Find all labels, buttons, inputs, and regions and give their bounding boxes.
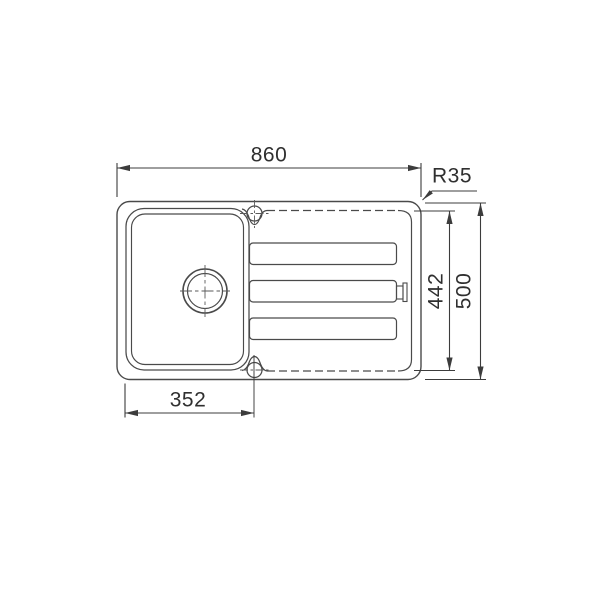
arrow-500-top	[477, 203, 483, 216]
groove-tab-cap	[403, 283, 407, 302]
drawing-canvas	[0, 0, 600, 600]
dim-label-overall-depth: 500	[454, 273, 475, 310]
drainer-groove-1	[250, 243, 397, 265]
center-lines	[180, 200, 270, 370]
arrow-500-bottom	[477, 367, 483, 380]
dim-label-inner-depth: 442	[426, 273, 447, 310]
sink-outer-outline	[117, 202, 421, 380]
dim-label-overall-width: 860	[251, 145, 288, 166]
tap-hole-scallop-bottom	[242, 357, 267, 372]
sink-technical-drawing: 860 R35 442 500 352	[0, 0, 600, 600]
arrow-352-right	[241, 410, 254, 416]
arrow-442-bottom	[446, 358, 452, 371]
arrow-352-left	[125, 410, 138, 416]
arrow-860-right	[408, 165, 421, 171]
drainer-edge-right	[398, 211, 412, 372]
arrow-442-top	[446, 211, 452, 224]
dim-label-corner-radius: R35	[432, 166, 472, 187]
sink-geometry	[117, 202, 421, 380]
arrow-860-left	[117, 165, 130, 171]
drainer-groove-3	[250, 318, 397, 340]
groove-tab-neck	[397, 286, 404, 299]
drainer-groove-2	[250, 281, 397, 303]
dim-label-bowl-width: 352	[170, 390, 207, 411]
